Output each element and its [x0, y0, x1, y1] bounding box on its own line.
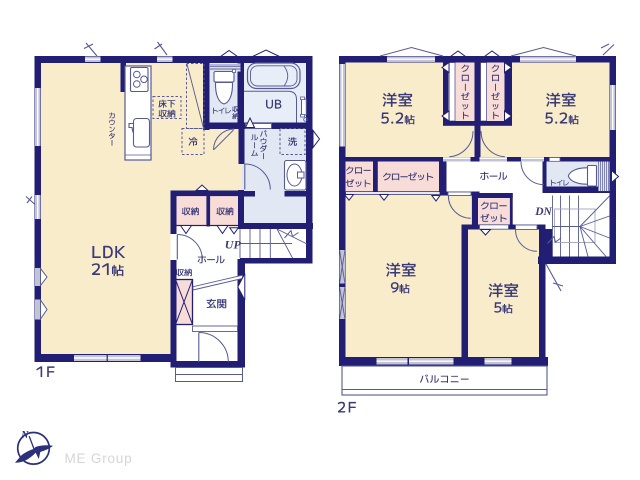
svg-text:DN: DN: [534, 206, 552, 218]
svg-text:UP: UP: [225, 238, 242, 252]
svg-text:N: N: [20, 430, 29, 441]
svg-text:ME Group: ME Group: [65, 451, 133, 466]
